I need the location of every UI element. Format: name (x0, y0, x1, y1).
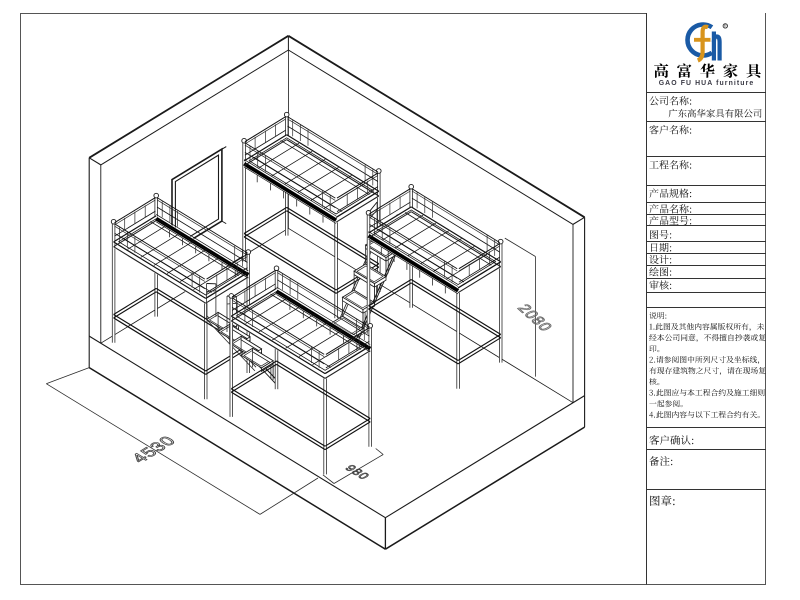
svg-text:2080: 2080 (513, 302, 556, 334)
svg-text:980: 980 (342, 463, 373, 482)
